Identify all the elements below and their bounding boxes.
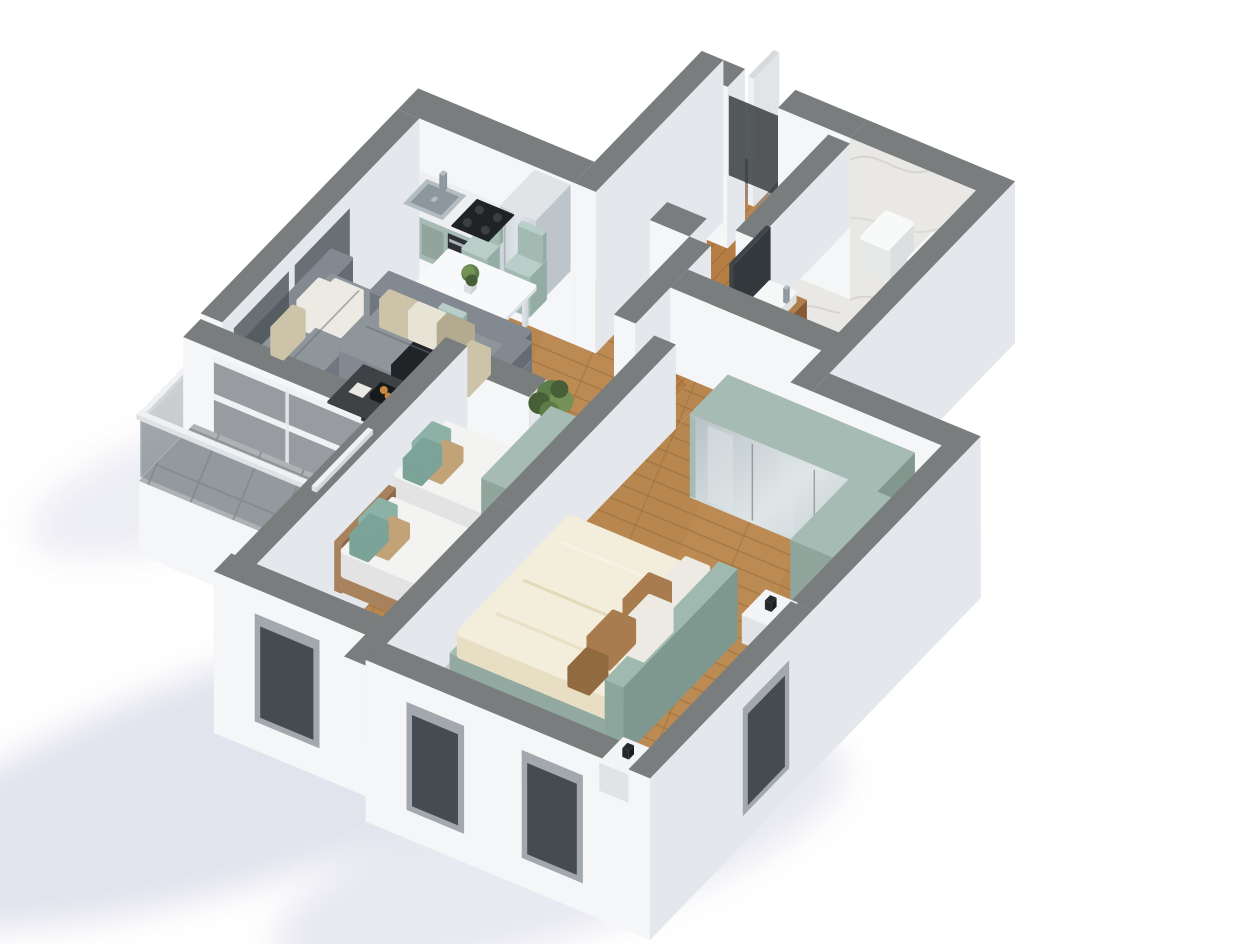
floor-plan-stage <box>0 0 1242 944</box>
apartment-3d-floor-plan <box>0 0 1242 944</box>
